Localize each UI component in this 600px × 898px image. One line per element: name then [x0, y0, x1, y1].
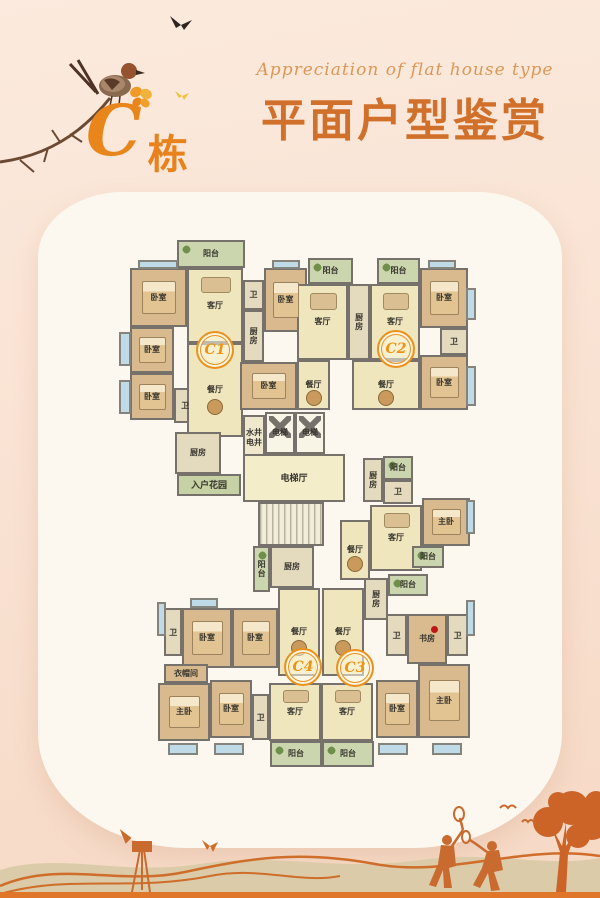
- building-letter: C: [86, 96, 142, 166]
- birds-icon: [500, 806, 534, 823]
- building-label: C 栋: [86, 96, 188, 180]
- footer-decoration: [0, 788, 600, 898]
- butterfly-black-icon: [168, 14, 194, 36]
- page-title: 平面户型鉴赏: [240, 84, 570, 149]
- building-suffix: 栋: [148, 122, 188, 180]
- bottom-strip: [0, 892, 600, 898]
- butterfly-small-icon: [202, 840, 218, 852]
- floorplan-panel: [38, 192, 562, 848]
- subtitle-english: Appreciation of flat house type: [240, 60, 570, 80]
